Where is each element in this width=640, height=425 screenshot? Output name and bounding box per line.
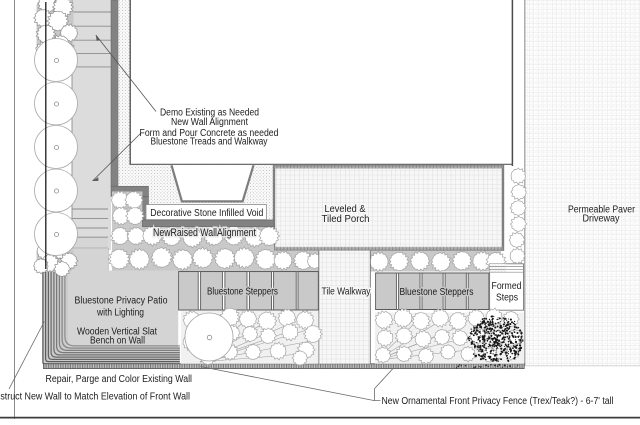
svg-text:Bluestone Privacy Patio: Bluestone Privacy Patio	[75, 296, 168, 307]
svg-text:Tiled Porch: Tiled Porch	[322, 214, 370, 225]
svg-text:Bluestone Steppers: Bluestone Steppers	[207, 286, 278, 297]
svg-text:Steps: Steps	[496, 292, 518, 303]
svg-text:Driveway: Driveway	[583, 214, 620, 225]
svg-text:Bluestone Treads and Walkway: Bluestone Treads and Walkway	[151, 137, 268, 148]
svg-text:Formed: Formed	[492, 281, 522, 292]
svg-text:Repair, Parge and Color Existi: Repair, Parge and Color Existing Wall	[46, 374, 193, 385]
svg-text:Bench on Wall: Bench on Wall	[90, 335, 145, 346]
svg-text:Construct New Wall to Match El: Construct New Wall to Match Elevation of…	[0, 392, 190, 403]
svg-text:Tile Walkway: Tile Walkway	[322, 286, 371, 297]
svg-text:with Lighting: with Lighting	[96, 308, 144, 319]
svg-text:Bluestone Steppers: Bluestone Steppers	[400, 287, 474, 298]
svg-text:New Ornamental Front Privacy F: New Ornamental Front Privacy Fence (Trex…	[382, 396, 614, 407]
svg-text:NewRaised WallAlignment: NewRaised WallAlignment	[153, 227, 256, 239]
svg-text:New Wall Alignment: New Wall Alignment	[171, 117, 248, 128]
svg-text:Decorative Stone Infilled Void: Decorative Stone Infilled Void	[150, 208, 263, 219]
